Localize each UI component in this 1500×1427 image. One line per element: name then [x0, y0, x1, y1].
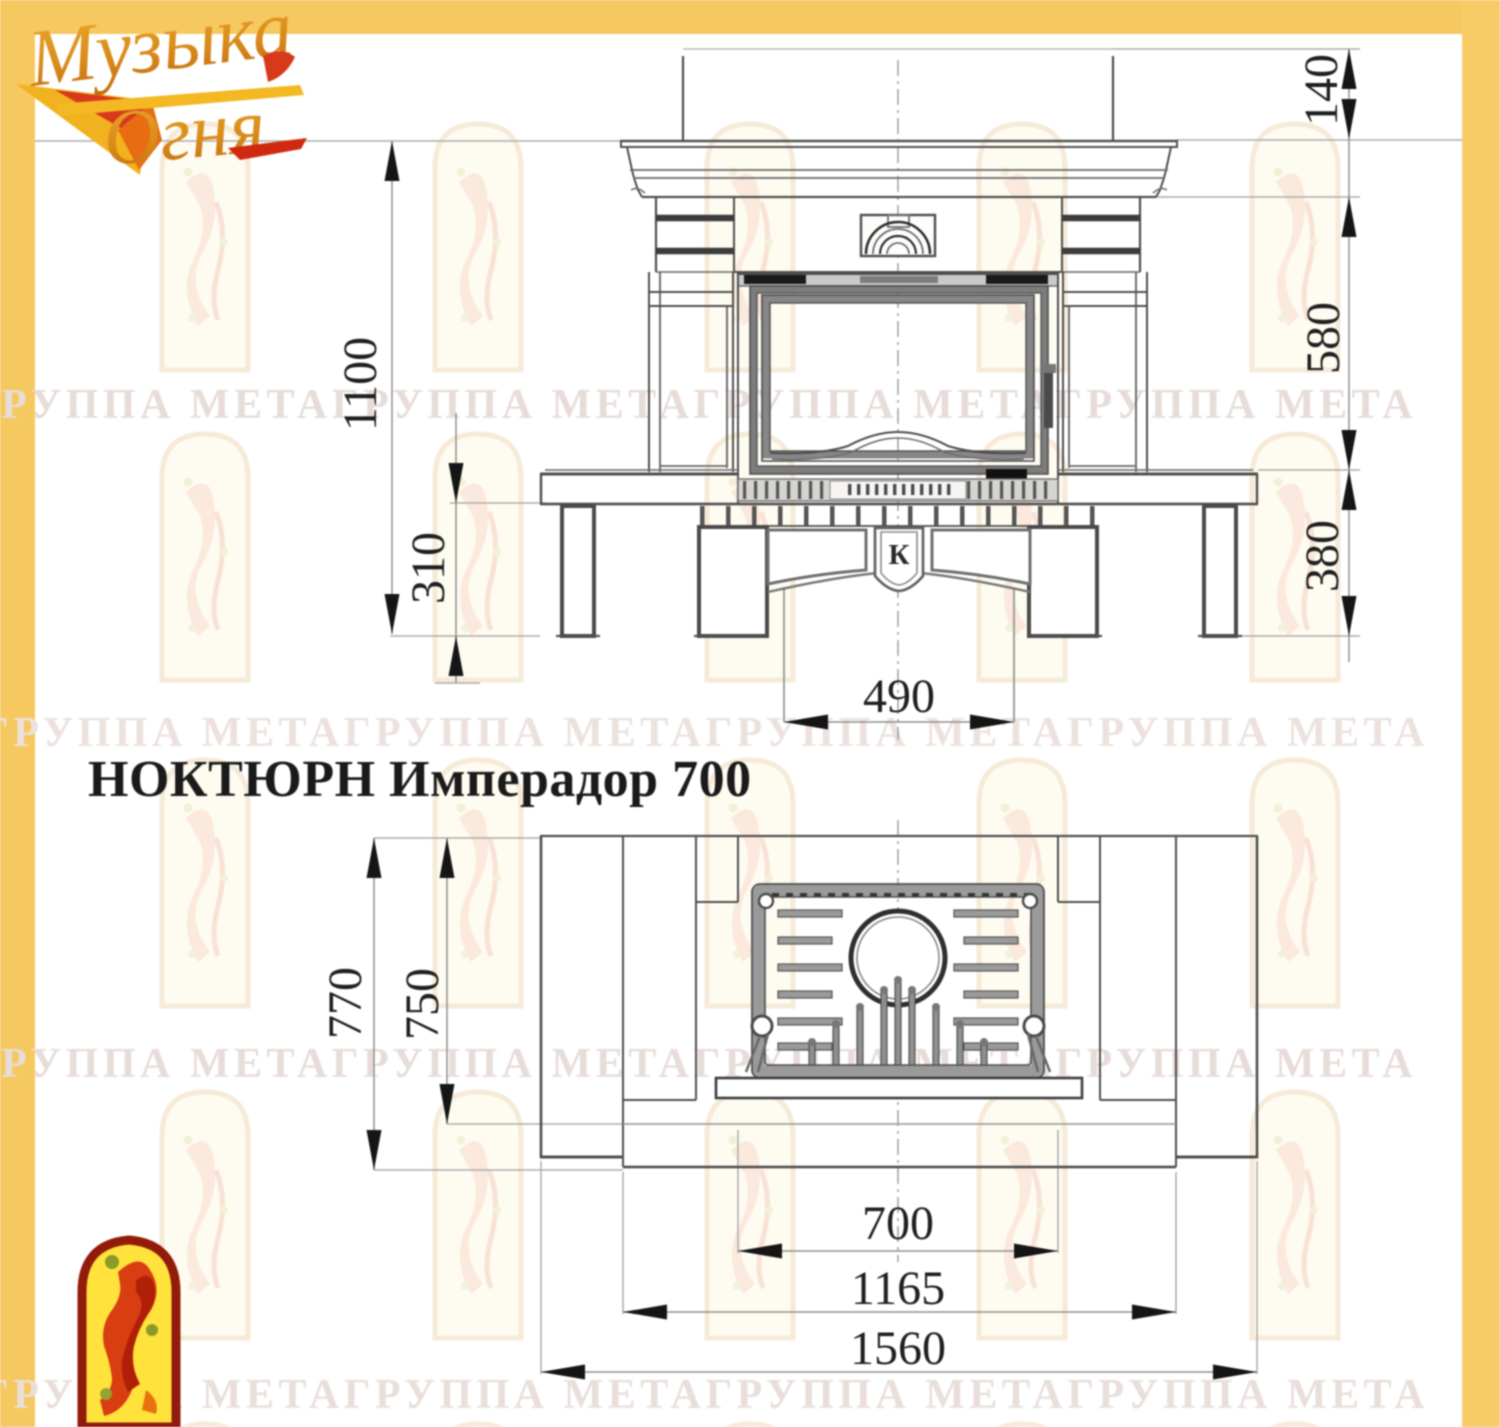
svg-text:1165: 1165 — [851, 1262, 945, 1315]
svg-text:НОКТЮРН Имперадор 700: НОКТЮРН Имперадор 700 — [88, 751, 752, 808]
svg-text:1100: 1100 — [334, 337, 387, 431]
svg-text:750: 750 — [396, 968, 449, 1040]
svg-text:770: 770 — [319, 967, 372, 1039]
svg-text:380: 380 — [1296, 520, 1349, 592]
svg-text:Огня: Огня — [100, 81, 269, 182]
svg-text:ГРУППА МЕТАГРУППА МЕТАГРУППА М: ГРУППА МЕТАГРУППА МЕТАГРУППА МЕТАГРУППА … — [0, 382, 1417, 428]
svg-text:К: К — [888, 539, 909, 571]
svg-text:ГРУППА МЕТАГРУППА МЕТАГРУППА М: ГРУППА МЕТАГРУППА МЕТАГРУППА МЕТАГРУППА … — [0, 1041, 1417, 1087]
svg-text:700: 700 — [862, 1197, 934, 1250]
svg-text:490: 490 — [863, 670, 935, 723]
svg-text:310: 310 — [402, 532, 455, 604]
svg-text:140: 140 — [1295, 54, 1348, 126]
svg-text:ГРУППА МЕТАГРУППА МЕТАГРУППА М: ГРУППА МЕТАГРУППА МЕТАГРУППА МЕТАГРУППА … — [0, 710, 1429, 756]
svg-text:1560: 1560 — [850, 1322, 946, 1375]
svg-text:580: 580 — [1297, 302, 1350, 374]
